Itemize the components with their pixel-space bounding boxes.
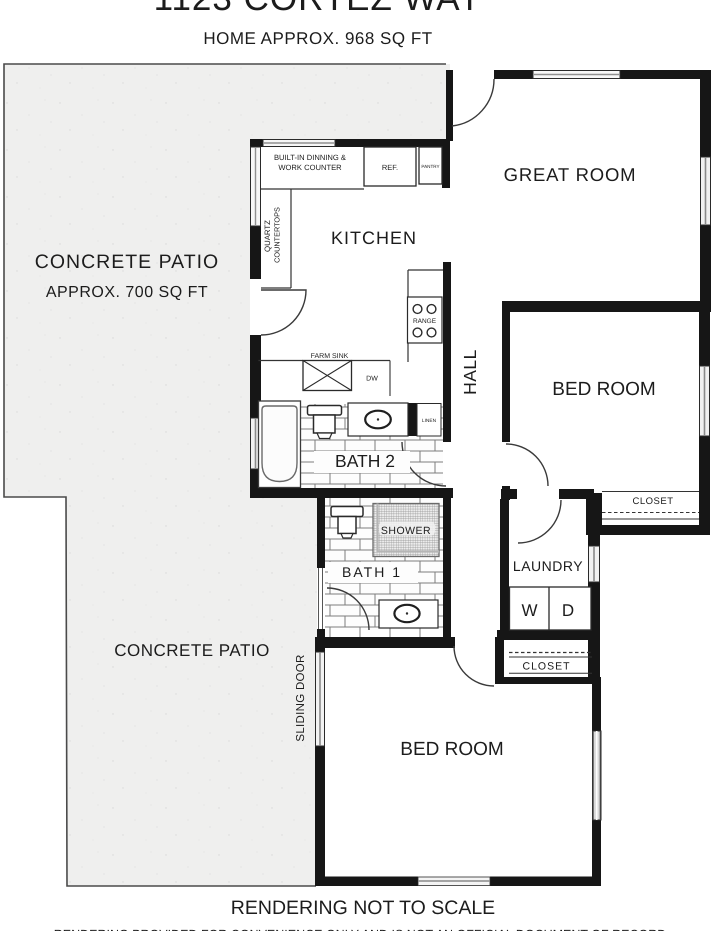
- svg-text:SHOWER: SHOWER: [381, 525, 431, 537]
- svg-text:HOME APPROX. 968 SQ FT: HOME APPROX. 968 SQ FT: [203, 29, 432, 48]
- svg-text:GREAT ROOM: GREAT ROOM: [504, 164, 637, 185]
- svg-text:RANGE: RANGE: [413, 318, 437, 325]
- svg-text:BATH 1: BATH 1: [342, 564, 402, 580]
- svg-text:FARM SINK: FARM SINK: [311, 353, 349, 360]
- svg-text:BATH 2: BATH 2: [335, 451, 395, 471]
- svg-text:CLOSET: CLOSET: [522, 661, 570, 673]
- svg-text:LAUNDRY: LAUNDRY: [513, 558, 583, 574]
- svg-text:BED ROOM: BED ROOM: [552, 379, 655, 400]
- svg-text:DW: DW: [366, 376, 378, 383]
- svg-text:COUNTERTOPS: COUNTERTOPS: [273, 207, 282, 263]
- svg-text:CONCRETE PATIO: CONCRETE PATIO: [35, 251, 219, 273]
- svg-text:RENDERING NOT TO SCALE: RENDERING NOT TO SCALE: [231, 897, 495, 919]
- svg-text:HALL: HALL: [460, 349, 480, 395]
- svg-text:BED ROOM: BED ROOM: [400, 739, 503, 760]
- svg-text:WORK COUNTER: WORK COUNTER: [278, 163, 342, 172]
- svg-text:1123 CORTEZ WAY: 1123 CORTEZ WAY: [154, 0, 483, 18]
- svg-text:BUILT-IN DINNING &: BUILT-IN DINNING &: [274, 153, 346, 162]
- svg-text:CLOSET: CLOSET: [632, 496, 673, 507]
- svg-text:APPROX. 700 SQ FT: APPROX. 700 SQ FT: [46, 284, 208, 301]
- svg-text:D: D: [562, 601, 574, 620]
- svg-text:REF.: REF.: [382, 163, 398, 172]
- svg-text:QUARTZ: QUARTZ: [263, 220, 272, 252]
- svg-text:PANTRY: PANTRY: [421, 164, 439, 169]
- svg-text:W: W: [521, 601, 537, 620]
- svg-text:CONCRETE PATIO: CONCRETE PATIO: [114, 641, 270, 660]
- svg-text:RENDERING PROVIDED FOR CONVENI: RENDERING PROVIDED FOR CONVENIENCE ONLY …: [54, 928, 667, 931]
- svg-text:LINEN: LINEN: [422, 418, 437, 424]
- svg-text:SLIDING DOOR: SLIDING DOOR: [295, 654, 307, 741]
- svg-text:KITCHEN: KITCHEN: [331, 228, 417, 248]
